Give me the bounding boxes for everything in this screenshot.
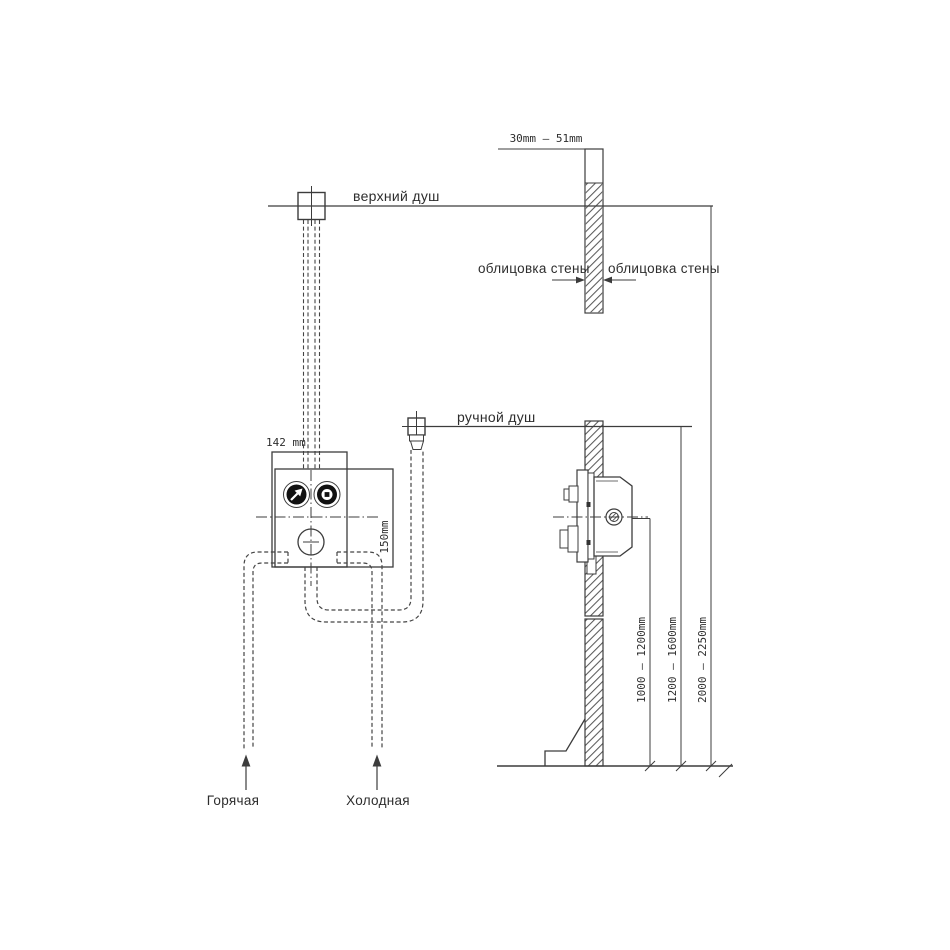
riser-pipe xyxy=(304,220,320,469)
overhead-shower-label: верхний душ xyxy=(353,188,440,204)
pipe-stub-bottom-outer xyxy=(560,530,568,548)
overhead-shower-height-label: 2000 — 2250mm xyxy=(695,600,711,720)
wall-thickness-dim-label: 30mm — 51mm xyxy=(498,132,594,145)
wall-section-top xyxy=(585,149,603,313)
fixing-screw-bottom xyxy=(587,540,591,545)
mixer-mount-height-label: 1000 — 1200mm xyxy=(634,600,650,720)
temp-knob-icon xyxy=(284,482,310,508)
mixer-front-view xyxy=(256,452,393,586)
diverter-knob-icon xyxy=(314,482,340,508)
hand-shower-label: ручной душ xyxy=(457,409,536,425)
hand-shower-height-label: 1200 — 1600mm xyxy=(665,600,681,720)
diagram-canvas: 30mm — 51mm верхний душ облицовка стены … xyxy=(0,0,950,950)
mixer-height-dim-label: 150mm xyxy=(377,477,393,597)
mixer-width-dim-label: 142 mm xyxy=(266,436,306,449)
wall-section-bottom xyxy=(585,619,603,766)
cold-flow-arrow xyxy=(373,755,382,791)
hot-water-label: Горячая xyxy=(195,793,271,808)
wall-flange xyxy=(588,473,594,559)
wall-cladding-right-label: облицовка стены xyxy=(608,261,720,276)
fixing-screw-top xyxy=(587,502,591,507)
pipe-stub-top-outer xyxy=(564,489,569,500)
wall-cladding-left-label: облицовка стены xyxy=(478,261,580,276)
cold-water-label: Холодная xyxy=(340,793,416,808)
cladding-arrow-left xyxy=(552,277,585,284)
line-art-svg xyxy=(0,0,950,950)
hot-flow-arrow xyxy=(242,755,251,791)
hand-shower-connector xyxy=(402,411,431,450)
pipe-stub-top xyxy=(569,486,578,502)
hot-water-pipe xyxy=(244,552,288,749)
pipe-stub-bottom xyxy=(568,526,578,552)
tray-profile xyxy=(545,719,585,766)
cladding-arrow-right xyxy=(603,277,636,284)
cold-water-pipe xyxy=(337,552,382,749)
wall-plate xyxy=(577,470,588,562)
